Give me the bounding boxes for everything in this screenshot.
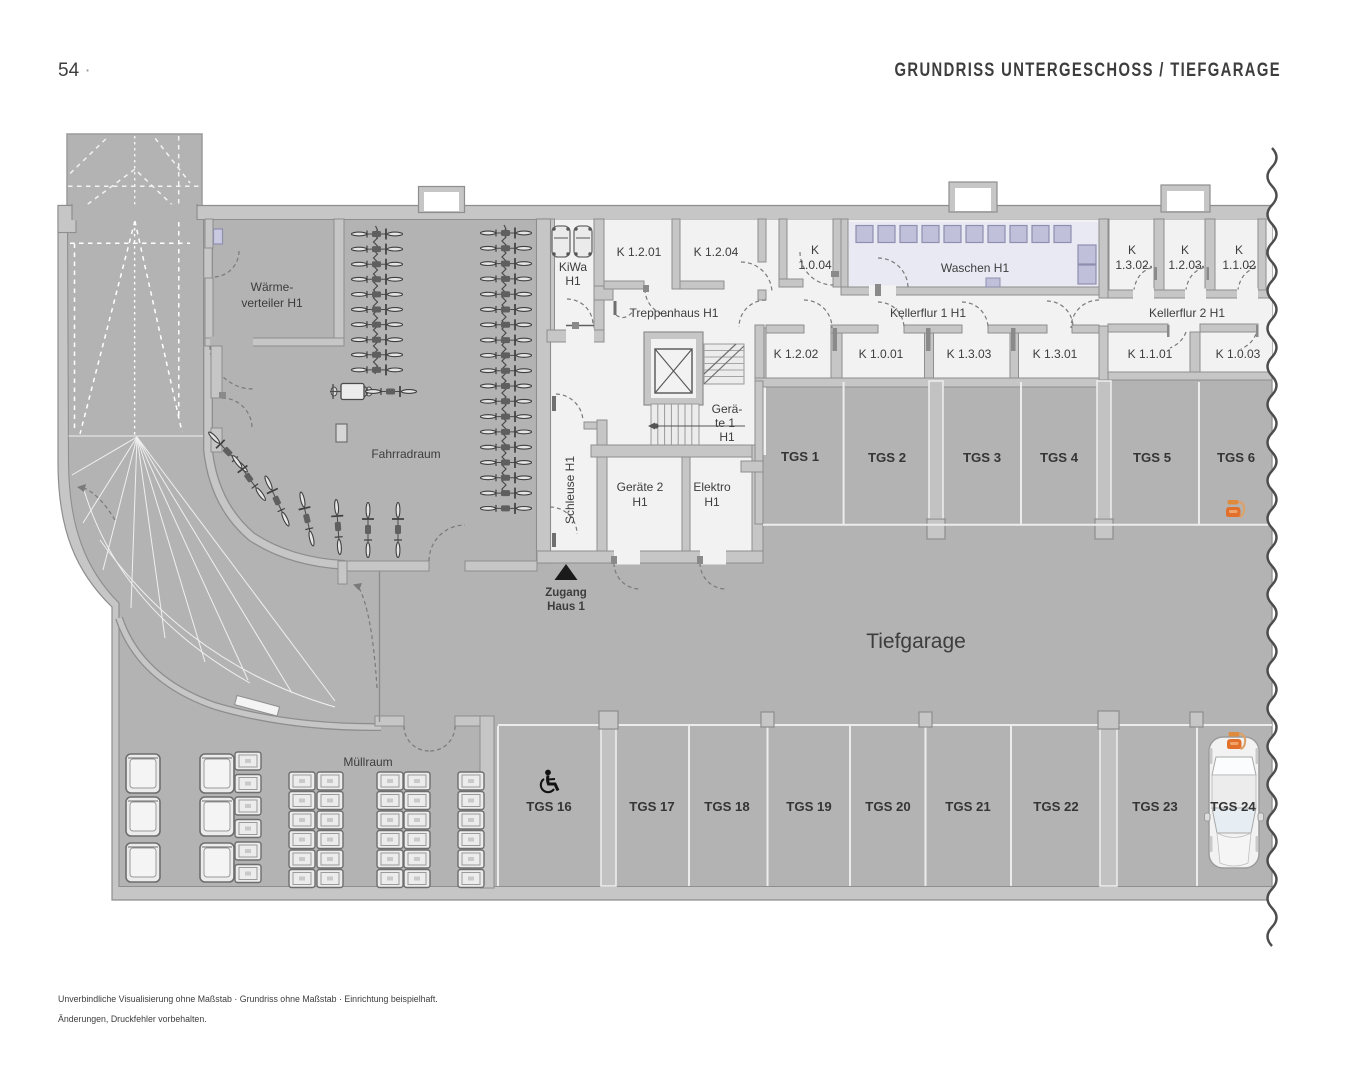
- svg-text:Unverbindliche Visualisierung: Unverbindliche Visualisierung ohne Maßst…: [58, 994, 438, 1004]
- svg-text:K: K: [1235, 243, 1243, 257]
- svg-text:K 1.3.03: K 1.3.03: [947, 347, 992, 361]
- svg-text:TGS 4: TGS 4: [1040, 450, 1079, 465]
- svg-text:GRUNDRISS UNTERGESCHOSS / TIEF: GRUNDRISS UNTERGESCHOSS / TIEFGARAGE: [895, 58, 1281, 81]
- svg-text:TGS 21: TGS 21: [945, 799, 990, 814]
- svg-text:Zugang: Zugang: [545, 587, 587, 599]
- svg-text:K: K: [1181, 243, 1189, 257]
- svg-text:TGS 19: TGS 19: [786, 799, 831, 814]
- svg-text:Treppenhaus H1: Treppenhaus H1: [630, 306, 719, 320]
- svg-text:K 1.2.01: K 1.2.01: [617, 245, 662, 259]
- svg-text:K: K: [811, 243, 819, 257]
- svg-text:K: K: [1128, 243, 1136, 257]
- svg-text:TGS 24: TGS 24: [1210, 799, 1256, 814]
- svg-text:TGS 6: TGS 6: [1217, 450, 1255, 465]
- svg-text:1.3.02: 1.3.02: [1115, 258, 1149, 272]
- svg-text:TGS 16: TGS 16: [526, 799, 571, 814]
- svg-text:K 1.2.02: K 1.2.02: [774, 347, 819, 361]
- svg-text:TGS 23: TGS 23: [1132, 799, 1177, 814]
- svg-text:TGS 22: TGS 22: [1033, 799, 1078, 814]
- svg-text:TGS 18: TGS 18: [704, 799, 749, 814]
- svg-text:1.1.02: 1.1.02: [1222, 258, 1256, 272]
- svg-text:K 1.0.01: K 1.0.01: [859, 347, 904, 361]
- svg-text:Wärme-: Wärme-: [251, 280, 294, 294]
- svg-text:H1: H1: [565, 274, 581, 288]
- svg-text:KiWa: KiWa: [559, 260, 588, 274]
- svg-text:Geräte 2: Geräte 2: [617, 480, 664, 494]
- svg-text:Haus 1: Haus 1: [547, 601, 585, 613]
- svg-text:Müllraum: Müllraum: [343, 755, 392, 769]
- svg-text:Kellerflur 2 H1: Kellerflur 2 H1: [1149, 306, 1225, 320]
- svg-text:Schleuse H1: Schleuse H1: [563, 456, 577, 524]
- svg-text:Kellerflur 1 H1: Kellerflur 1 H1: [890, 306, 966, 320]
- svg-text:TGS 5: TGS 5: [1133, 450, 1171, 465]
- svg-text:K 1.2.04: K 1.2.04: [694, 245, 739, 259]
- svg-text:K 1.3.01: K 1.3.01: [1033, 347, 1078, 361]
- svg-text:Waschen H1: Waschen H1: [941, 261, 1010, 275]
- svg-text:K 1.0.03: K 1.0.03: [1216, 347, 1261, 361]
- svg-text:Änderungen, Druckfehler vorbeh: Änderungen, Druckfehler vorbehalten.: [58, 1014, 207, 1024]
- svg-text:1.0.04: 1.0.04: [798, 258, 832, 272]
- svg-text:Fahrradraum: Fahrradraum: [371, 447, 440, 461]
- svg-text:K 1.1.01: K 1.1.01: [1128, 347, 1173, 361]
- svg-text:Elektro: Elektro: [693, 480, 731, 494]
- svg-text:1.2.03: 1.2.03: [1168, 258, 1202, 272]
- svg-text:TGS 17: TGS 17: [629, 799, 674, 814]
- svg-text:TGS 20: TGS 20: [865, 799, 910, 814]
- svg-text:TGS 2: TGS 2: [868, 450, 906, 465]
- svg-text:te 1: te 1: [715, 416, 735, 430]
- svg-text:TGS 1: TGS 1: [781, 449, 819, 464]
- svg-text:Gerä-: Gerä-: [712, 402, 743, 416]
- svg-text:54 ·: 54 ·: [58, 60, 91, 81]
- svg-text:Tiefgarage: Tiefgarage: [866, 630, 966, 653]
- svg-text:TGS 3: TGS 3: [963, 450, 1001, 465]
- svg-text:H1: H1: [704, 495, 720, 509]
- svg-text:verteiler H1: verteiler H1: [241, 296, 303, 310]
- svg-text:H1: H1: [719, 430, 735, 444]
- svg-text:H1: H1: [632, 495, 648, 509]
